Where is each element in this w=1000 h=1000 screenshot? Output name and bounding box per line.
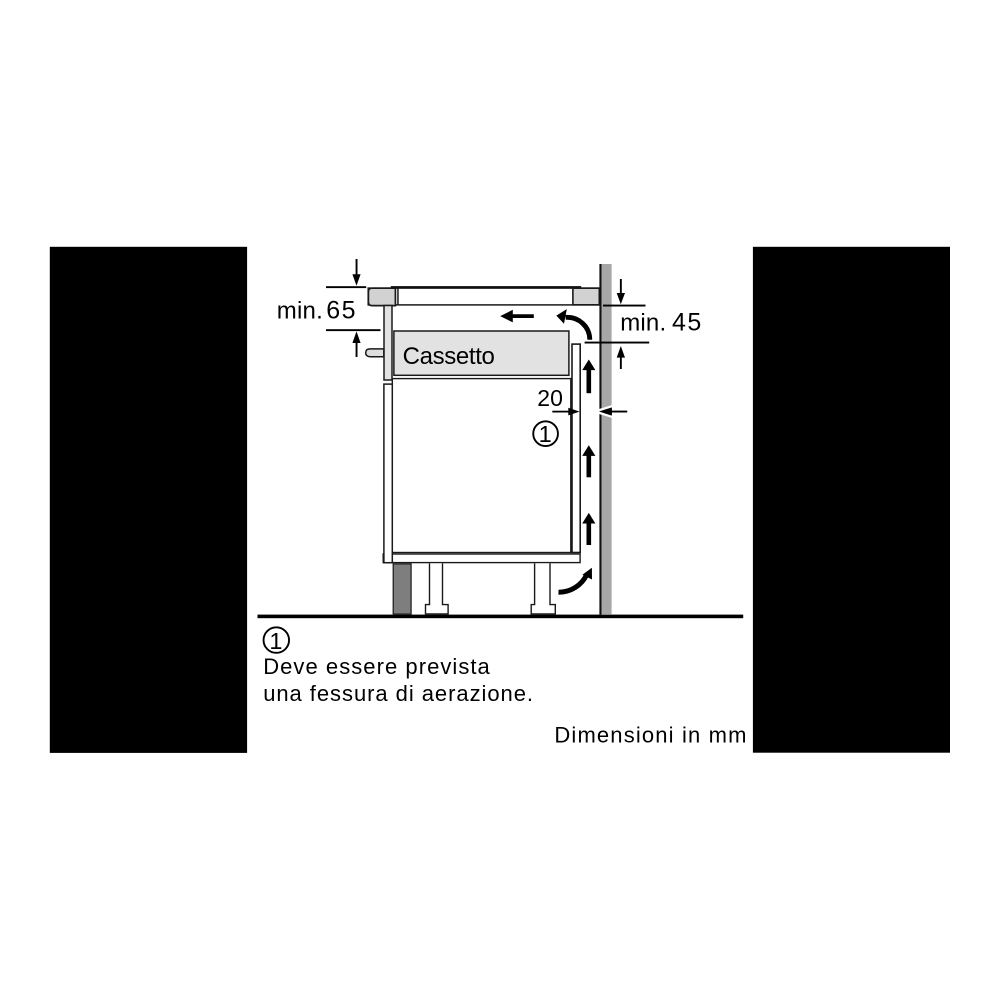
svg-text:una fessura di aerazione.: una fessura di aerazione.: [263, 681, 534, 706]
svg-text:45: 45: [672, 309, 703, 337]
svg-text:Cassetto: Cassetto: [403, 343, 495, 370]
svg-text:min.: min.: [277, 297, 323, 324]
svg-text:Deve essere prevista: Deve essere prevista: [263, 654, 491, 679]
svg-text:min.: min.: [620, 310, 666, 337]
svg-text:1: 1: [539, 421, 552, 447]
svg-text:1: 1: [269, 628, 282, 654]
svg-text:Dimensioni in mm: Dimensioni in mm: [554, 723, 747, 748]
svg-text:65: 65: [326, 296, 357, 324]
svg-text:20: 20: [537, 385, 563, 411]
